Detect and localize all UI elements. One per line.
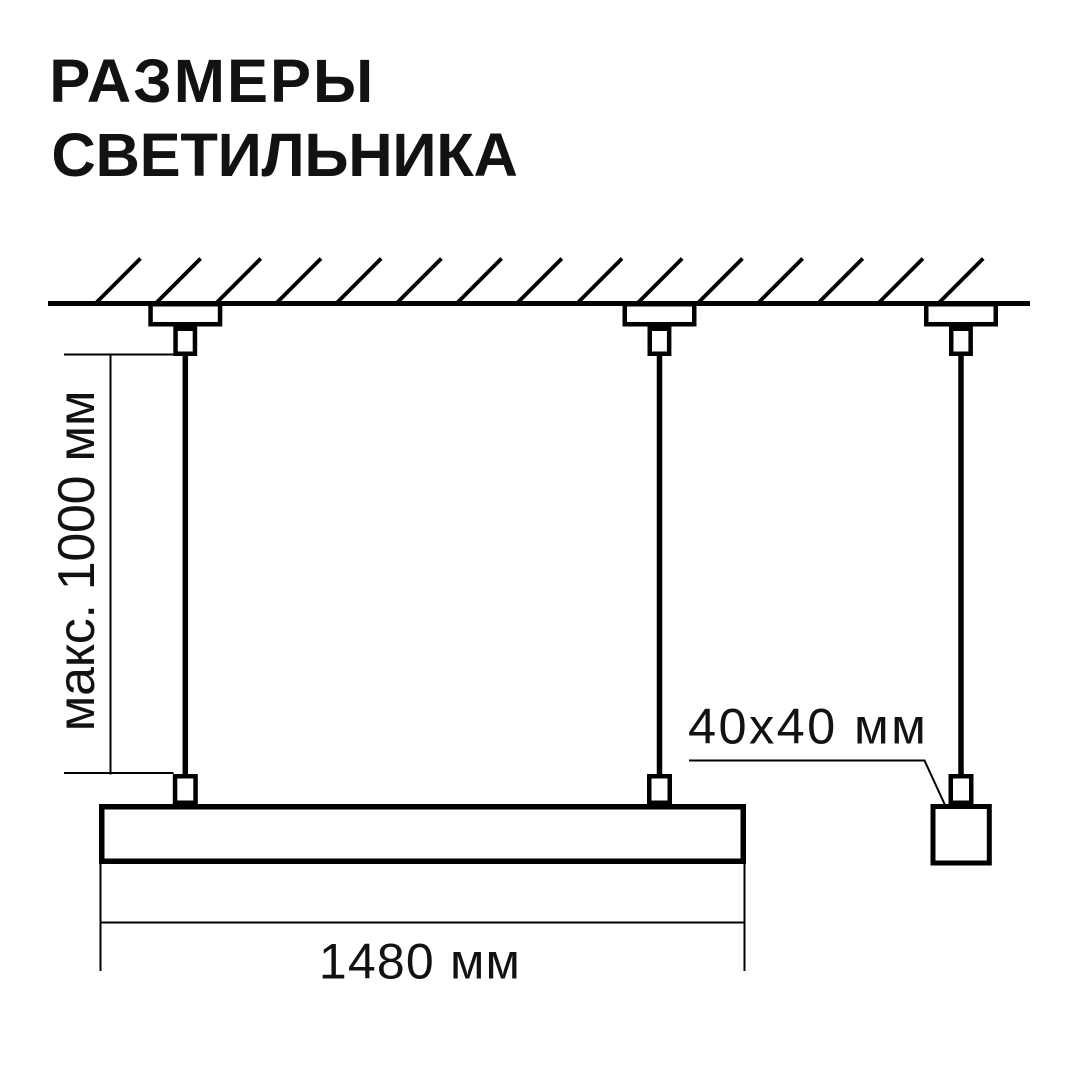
svg-text:40х40 мм: 40х40 мм — [688, 698, 928, 755]
svg-text:СВЕТИЛЬНИКА: СВЕТИЛЬНИКА — [51, 121, 517, 190]
svg-text:РАЗМЕРЫ: РАЗМЕРЫ — [49, 47, 375, 116]
svg-text:1480 мм: 1480 мм — [319, 934, 521, 990]
svg-text:макс. 1000 мм: макс. 1000 мм — [48, 391, 106, 732]
